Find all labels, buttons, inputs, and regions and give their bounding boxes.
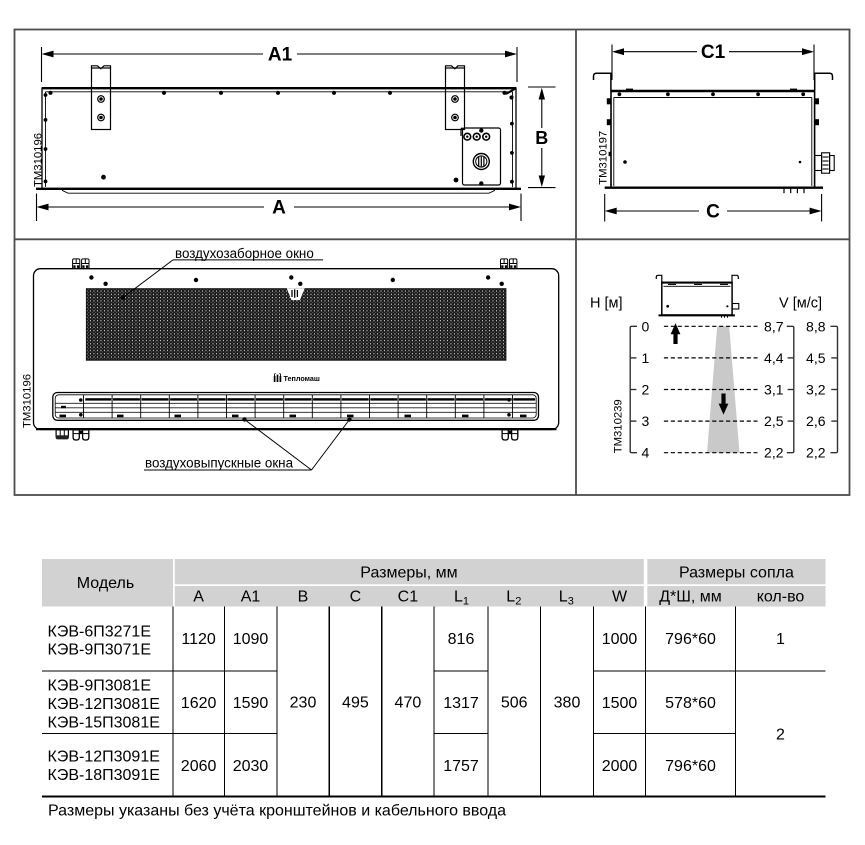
svg-text:3: 3	[642, 413, 650, 429]
svg-text:1620: 1620	[181, 695, 217, 712]
svg-text:1120: 1120	[181, 631, 216, 648]
svg-text:2030: 2030	[233, 758, 269, 775]
svg-text:2: 2	[642, 382, 650, 398]
svg-text:2060: 2060	[181, 758, 217, 775]
svg-text:4,4: 4,4	[764, 350, 784, 366]
svg-text:КЭВ-9П3071Е: КЭВ-9П3071Е	[48, 642, 151, 659]
svg-text:A1: A1	[241, 589, 261, 606]
svg-text:TM310196: TM310196	[22, 374, 34, 428]
svg-text:TM310239: TM310239	[613, 399, 625, 453]
svg-text:3,2: 3,2	[806, 382, 826, 398]
svg-text:КЭВ-15П3081Е: КЭВ-15П3081Е	[48, 715, 160, 732]
svg-text:A1: A1	[268, 45, 293, 66]
svg-text:воздухозаборное окно: воздухозаборное окно	[175, 246, 314, 261]
svg-text:TM310197: TM310197	[598, 131, 610, 185]
svg-text:КЭВ-12П3091Е: КЭВ-12П3091Е	[48, 749, 160, 766]
svg-text:380: 380	[554, 695, 581, 712]
svg-text:A: A	[193, 589, 204, 606]
svg-text:Тепломаш: Тепломаш	[284, 374, 320, 383]
svg-text:1317: 1317	[443, 695, 479, 712]
svg-text:1757: 1757	[443, 758, 479, 775]
svg-text:W: W	[612, 589, 628, 606]
svg-text:796*60: 796*60	[665, 631, 716, 648]
svg-text:КЭВ-12П3081Е: КЭВ-12П3081Е	[48, 696, 160, 713]
svg-text:4: 4	[642, 445, 650, 461]
svg-text:КЭВ-18П3091Е: КЭВ-18П3091Е	[48, 767, 160, 784]
svg-text:A: A	[272, 198, 286, 219]
svg-text:B: B	[298, 589, 309, 606]
svg-text:2000: 2000	[602, 758, 638, 775]
svg-text:230: 230	[290, 695, 317, 712]
svg-text:2,6: 2,6	[806, 413, 826, 429]
svg-text:8,8: 8,8	[806, 318, 826, 334]
svg-text:Размеры указаны без учёта крон: Размеры указаны без учёта кронштейнов и …	[48, 803, 506, 820]
svg-text:578*60: 578*60	[665, 695, 716, 712]
svg-text:КЭВ-6П3271Е: КЭВ-6П3271Е	[48, 624, 151, 641]
svg-text:1: 1	[776, 631, 785, 648]
svg-text:V [м/с]: V [м/с]	[779, 296, 822, 312]
svg-text:1590: 1590	[233, 695, 269, 712]
svg-text:H [м]: H [м]	[590, 296, 623, 312]
svg-text:C: C	[350, 589, 362, 606]
svg-text:8,7: 8,7	[764, 318, 784, 334]
svg-text:Модель: Модель	[77, 575, 134, 592]
svg-text:2,5: 2,5	[764, 413, 784, 429]
svg-text:495: 495	[342, 695, 369, 712]
svg-text:816: 816	[448, 631, 475, 648]
svg-text:2,2: 2,2	[806, 445, 826, 461]
svg-text:C1: C1	[701, 42, 726, 63]
svg-text:B: B	[535, 128, 548, 148]
svg-text:TM310196: TM310196	[33, 133, 45, 187]
svg-text:1500: 1500	[602, 695, 638, 712]
svg-text:Размеры сопла: Размеры сопла	[679, 565, 794, 582]
svg-text:C1: C1	[398, 589, 419, 606]
svg-text:470: 470	[395, 695, 422, 712]
svg-text:КЭВ-9П3081Е: КЭВ-9П3081Е	[48, 678, 151, 695]
svg-text:0: 0	[642, 318, 650, 334]
svg-text:Д*Ш, мм: Д*Ш, мм	[659, 589, 722, 606]
svg-text:2: 2	[776, 727, 785, 744]
svg-text:воздуховыпускные окна: воздуховыпускные окна	[145, 456, 294, 471]
svg-text:кол-во: кол-во	[757, 589, 805, 606]
svg-text:Размеры, мм: Размеры, мм	[360, 565, 457, 582]
svg-text:2,2: 2,2	[764, 445, 784, 461]
svg-text:4,5: 4,5	[806, 350, 826, 366]
svg-text:1000: 1000	[602, 631, 638, 648]
svg-text:3,1: 3,1	[764, 382, 784, 398]
svg-text:C: C	[706, 202, 720, 223]
svg-text:1: 1	[642, 350, 650, 366]
svg-text:506: 506	[501, 695, 528, 712]
svg-text:1090: 1090	[233, 631, 269, 648]
svg-text:796*60: 796*60	[665, 758, 716, 775]
